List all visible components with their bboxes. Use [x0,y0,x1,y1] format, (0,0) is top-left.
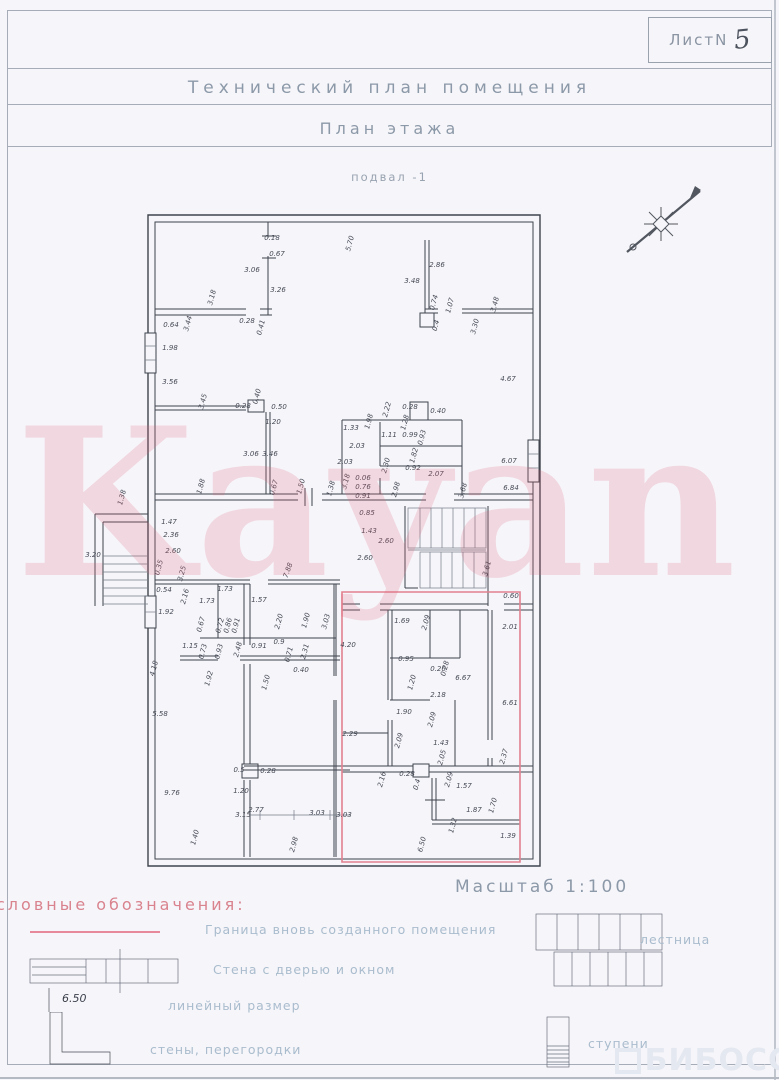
legend-item-boundary: Граница вновь созданного помещения [205,922,496,937]
dimension-label: 0.64 [163,321,179,329]
partition-symbol [42,1012,122,1070]
dimension-label: 0.40 [251,387,263,405]
biboss-text: БИБОСС [645,1043,779,1078]
document-page: ЛистN 5 Технический план помещения План … [0,0,779,1080]
dimension-label: 1.98 [162,344,178,352]
dimension-label: 0.41 [255,319,267,336]
dimension-label: 3.68 [457,481,469,499]
dimension-label: 0.28 [399,770,415,778]
dimension-label: 0.93 [213,643,225,660]
dimension-label: 0.73 [197,643,209,660]
dimension-label: 3.61 [481,560,493,577]
dimension-label: 0.67 [269,250,285,258]
dimension-label: 2.09 [393,731,405,749]
partition-wall [342,766,533,772]
dimension-label: 2.98 [390,480,402,498]
dimension-label: 1.47 [161,518,177,526]
dimension-label: 0.18 [264,234,280,242]
legend-item-stairs: лестница [640,932,710,947]
dimension-label: 1.73 [217,585,233,593]
dimension-label: 3.48 [404,277,420,285]
legend-item-wall: Стена с дверью и окном [213,962,395,977]
legend-heading: словные обозначения: [0,895,246,914]
dimension-label: 0.28 [235,402,251,410]
dimension-label: 4.18 [148,659,160,677]
dimension-label: 1.28 [399,413,411,431]
boundary-line-symbol [30,931,160,933]
dimension-label: 2.16 [179,587,191,605]
dimension-label: 0.40 [430,407,446,415]
dimension-label: 1.20 [265,418,281,426]
dimension-label: 0.60 [503,592,519,600]
dimension-label: 0.40 [293,666,309,674]
legend-item-partitions: стены, перегородки [150,1042,301,1057]
dimension-label: 6.07 [501,457,517,465]
dimension-label: 1.82 [408,446,420,464]
dimension-label: 2.20 [273,612,285,630]
dimension-label: 0.4 [412,778,423,791]
dimension-label: 3.26 [270,286,286,294]
dimension-label: 0.54 [156,586,172,594]
dimension-label: 1.88 [195,477,207,495]
dimension-label: 7.88 [282,561,295,579]
dimension-label: 2.31 [299,643,311,660]
dimension-label: 1.92 [203,669,215,687]
dimension-label: 0.28 [402,403,418,411]
dimension-label: 5.70 [344,234,356,252]
dimension-label: 1.57 [251,596,267,604]
dimension-label: 3.30 [469,317,481,335]
dimension-label: 0.28 [260,767,276,775]
dimension-label: 0.91 [355,492,371,500]
dimension-label: 3.25 [176,564,188,582]
door-box [413,764,429,777]
dimension-label: 1.39 [500,832,516,840]
dimension-label: 0.50 [271,403,287,411]
dimension-label: 3.45 [197,392,209,410]
dimension-label: 2.03 [349,442,365,450]
dimension-label: 2.29 [342,730,358,738]
dimension-label: 1.70 [487,796,499,814]
dimension-label: 3.44 [182,315,194,332]
dimension-label: 2.98 [288,835,300,853]
legend-item-linear-dim: линейный размер [168,998,301,1013]
partition-wall [425,778,520,824]
dimension-line [250,810,350,820]
dimension-label: 1.73 [199,597,215,605]
dimension-label: 1.69 [394,617,410,625]
dimension-label: 3.03 [320,613,332,630]
dimension-label: 1.90 [300,611,312,629]
dimension-label: 2.16 [376,770,388,788]
room-wall [425,240,533,313]
dimension-label: 0.76 [355,483,371,491]
dimension-label: 5.58 [152,710,168,718]
biboss-logo-icon [615,1048,641,1074]
dimension-label: 3.03 [309,809,325,817]
dimension-label: 3.18 [206,288,218,306]
dimension-labels: 0.180.673.063.263.180.643.440.280.415.70… [85,234,519,853]
dimension-label: 0.5 [233,766,245,774]
dimension-label: 0.28 [439,659,451,677]
dimension-label: 6.84 [503,484,519,492]
partition-wall [342,604,533,610]
dimension-label: 0.91 [251,642,267,650]
dimension-label: 1.07 [444,296,456,314]
partition-wall [342,610,492,766]
dimension-label: 1.90 [396,708,412,716]
dimension-label: 0.9 [273,638,285,646]
dimension-label: 1.20 [406,673,418,691]
dimension-label: 1.32 [447,816,459,834]
dimension-label: 3.06 [244,266,260,274]
dimension-label: 1.40 [189,828,201,846]
biboss-watermark: БИБОСС [615,1043,779,1078]
dimension-label: 0.92 [405,464,421,472]
dimension-label: 2.18 [430,691,446,699]
dimension-label: 0.74 [428,294,440,311]
dimension-label: 9.76 [164,789,180,797]
dimension-label: 2.01 [502,623,518,631]
dimension-label: 0.06 [355,474,371,482]
dimension-label: 0.67 [195,615,207,633]
legend-dim-sample: 6.50 [62,992,87,1005]
dimension-label: 2.86 [429,261,445,269]
dimension-label: 2.60 [165,547,181,555]
dimension-label: 6.50 [416,835,428,853]
north-arrow-icon [627,186,701,252]
dimension-label: 3.56 [162,378,178,386]
dimension-label: 1.33 [343,424,359,432]
dimension-label: 3.06 [243,450,259,458]
dimension-label: 6.67 [455,674,471,682]
dimension-label: 2.22 [381,400,393,418]
dimension-label: 2.07 [428,470,444,478]
dimension-label: 0.85 [359,509,375,517]
dimension-label: 0.95 [398,655,414,663]
dimension-label: 1.92 [158,608,174,616]
dimension-label: 0.93 [416,429,428,446]
dimension-label: 0.99 [402,431,418,439]
dimension-label: 6.61 [502,699,518,707]
stairs-symbol [528,912,688,992]
dimension-label: 1.57 [456,782,472,790]
dimension-label: 2.37 [498,747,510,765]
dimension-label: 2.03 [337,458,353,466]
dimension-label: 3.03 [336,811,352,819]
dimension-label: 1.50 [260,673,272,691]
staircase [405,506,488,606]
dimension-label: 1.98 [363,412,375,430]
dimension-label: 3.46 [262,450,278,458]
dimension-label: 2.60 [378,537,394,545]
dimension-label: 1.11 [381,431,397,439]
dimension-label: 1.20 [233,787,249,795]
dimension-label: 0.28 [239,317,255,325]
steps-symbol [546,1016,572,1070]
dimension-label: 0.4 [431,319,442,332]
corridor-wall [155,488,533,506]
linear-dim-symbol [44,988,54,1012]
dimension-label: 2.05 [436,748,448,766]
dimension-label: 2.60 [357,554,373,562]
dimension-label: 1.43 [361,527,377,535]
dimension-label: 1.87 [466,806,482,814]
dimension-label: 4.67 [500,375,516,383]
dimension-label: 2.36 [163,531,179,539]
outer-wall-inner [155,222,533,859]
dimension-label: 1.43 [433,739,449,747]
dimension-label: 4.20 [340,641,356,649]
dimension-label: 2.09 [443,770,455,788]
dimension-label: 1.15 [182,642,198,650]
dimension-label: 3.48 [489,295,501,313]
dimension-label: 3.15 [235,811,251,819]
dimension-label: 2.09 [426,710,438,728]
exterior-stairs [95,514,148,606]
dimension-label: 2.48 [232,640,244,658]
dimension-label: 3.20 [85,551,101,559]
dimension-label: 2.30 [380,456,392,474]
dimension-label: 1.38 [116,488,128,506]
